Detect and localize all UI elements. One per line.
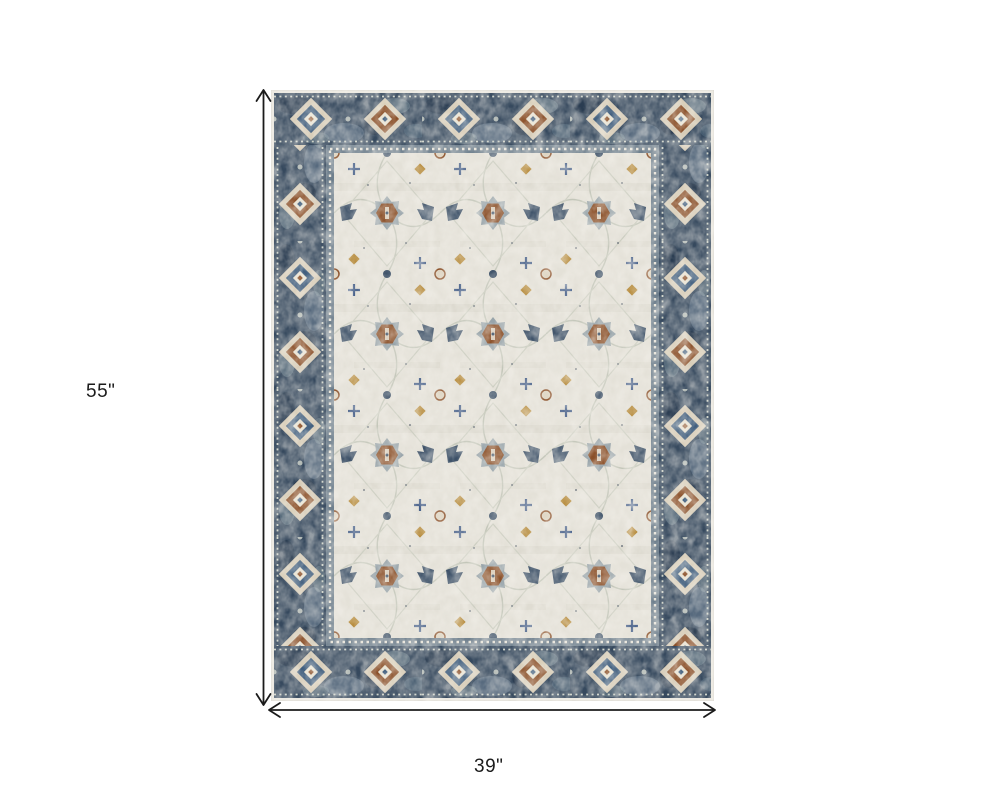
rug-image [271, 90, 714, 701]
arrow-left-icon [269, 703, 280, 717]
width-dimension-label: 39" [474, 757, 503, 776]
arrow-up-icon [257, 90, 271, 101]
arrow-right-icon [704, 703, 715, 717]
arrow-down-icon [257, 694, 271, 705]
rug-dimension-diagram: 55" 39" [0, 0, 1000, 799]
width-dimension-arrow [269, 703, 715, 717]
rug-distress-texture [272, 91, 713, 700]
height-dimension-label: 55" [86, 382, 115, 401]
height-dimension-arrow [257, 90, 271, 705]
